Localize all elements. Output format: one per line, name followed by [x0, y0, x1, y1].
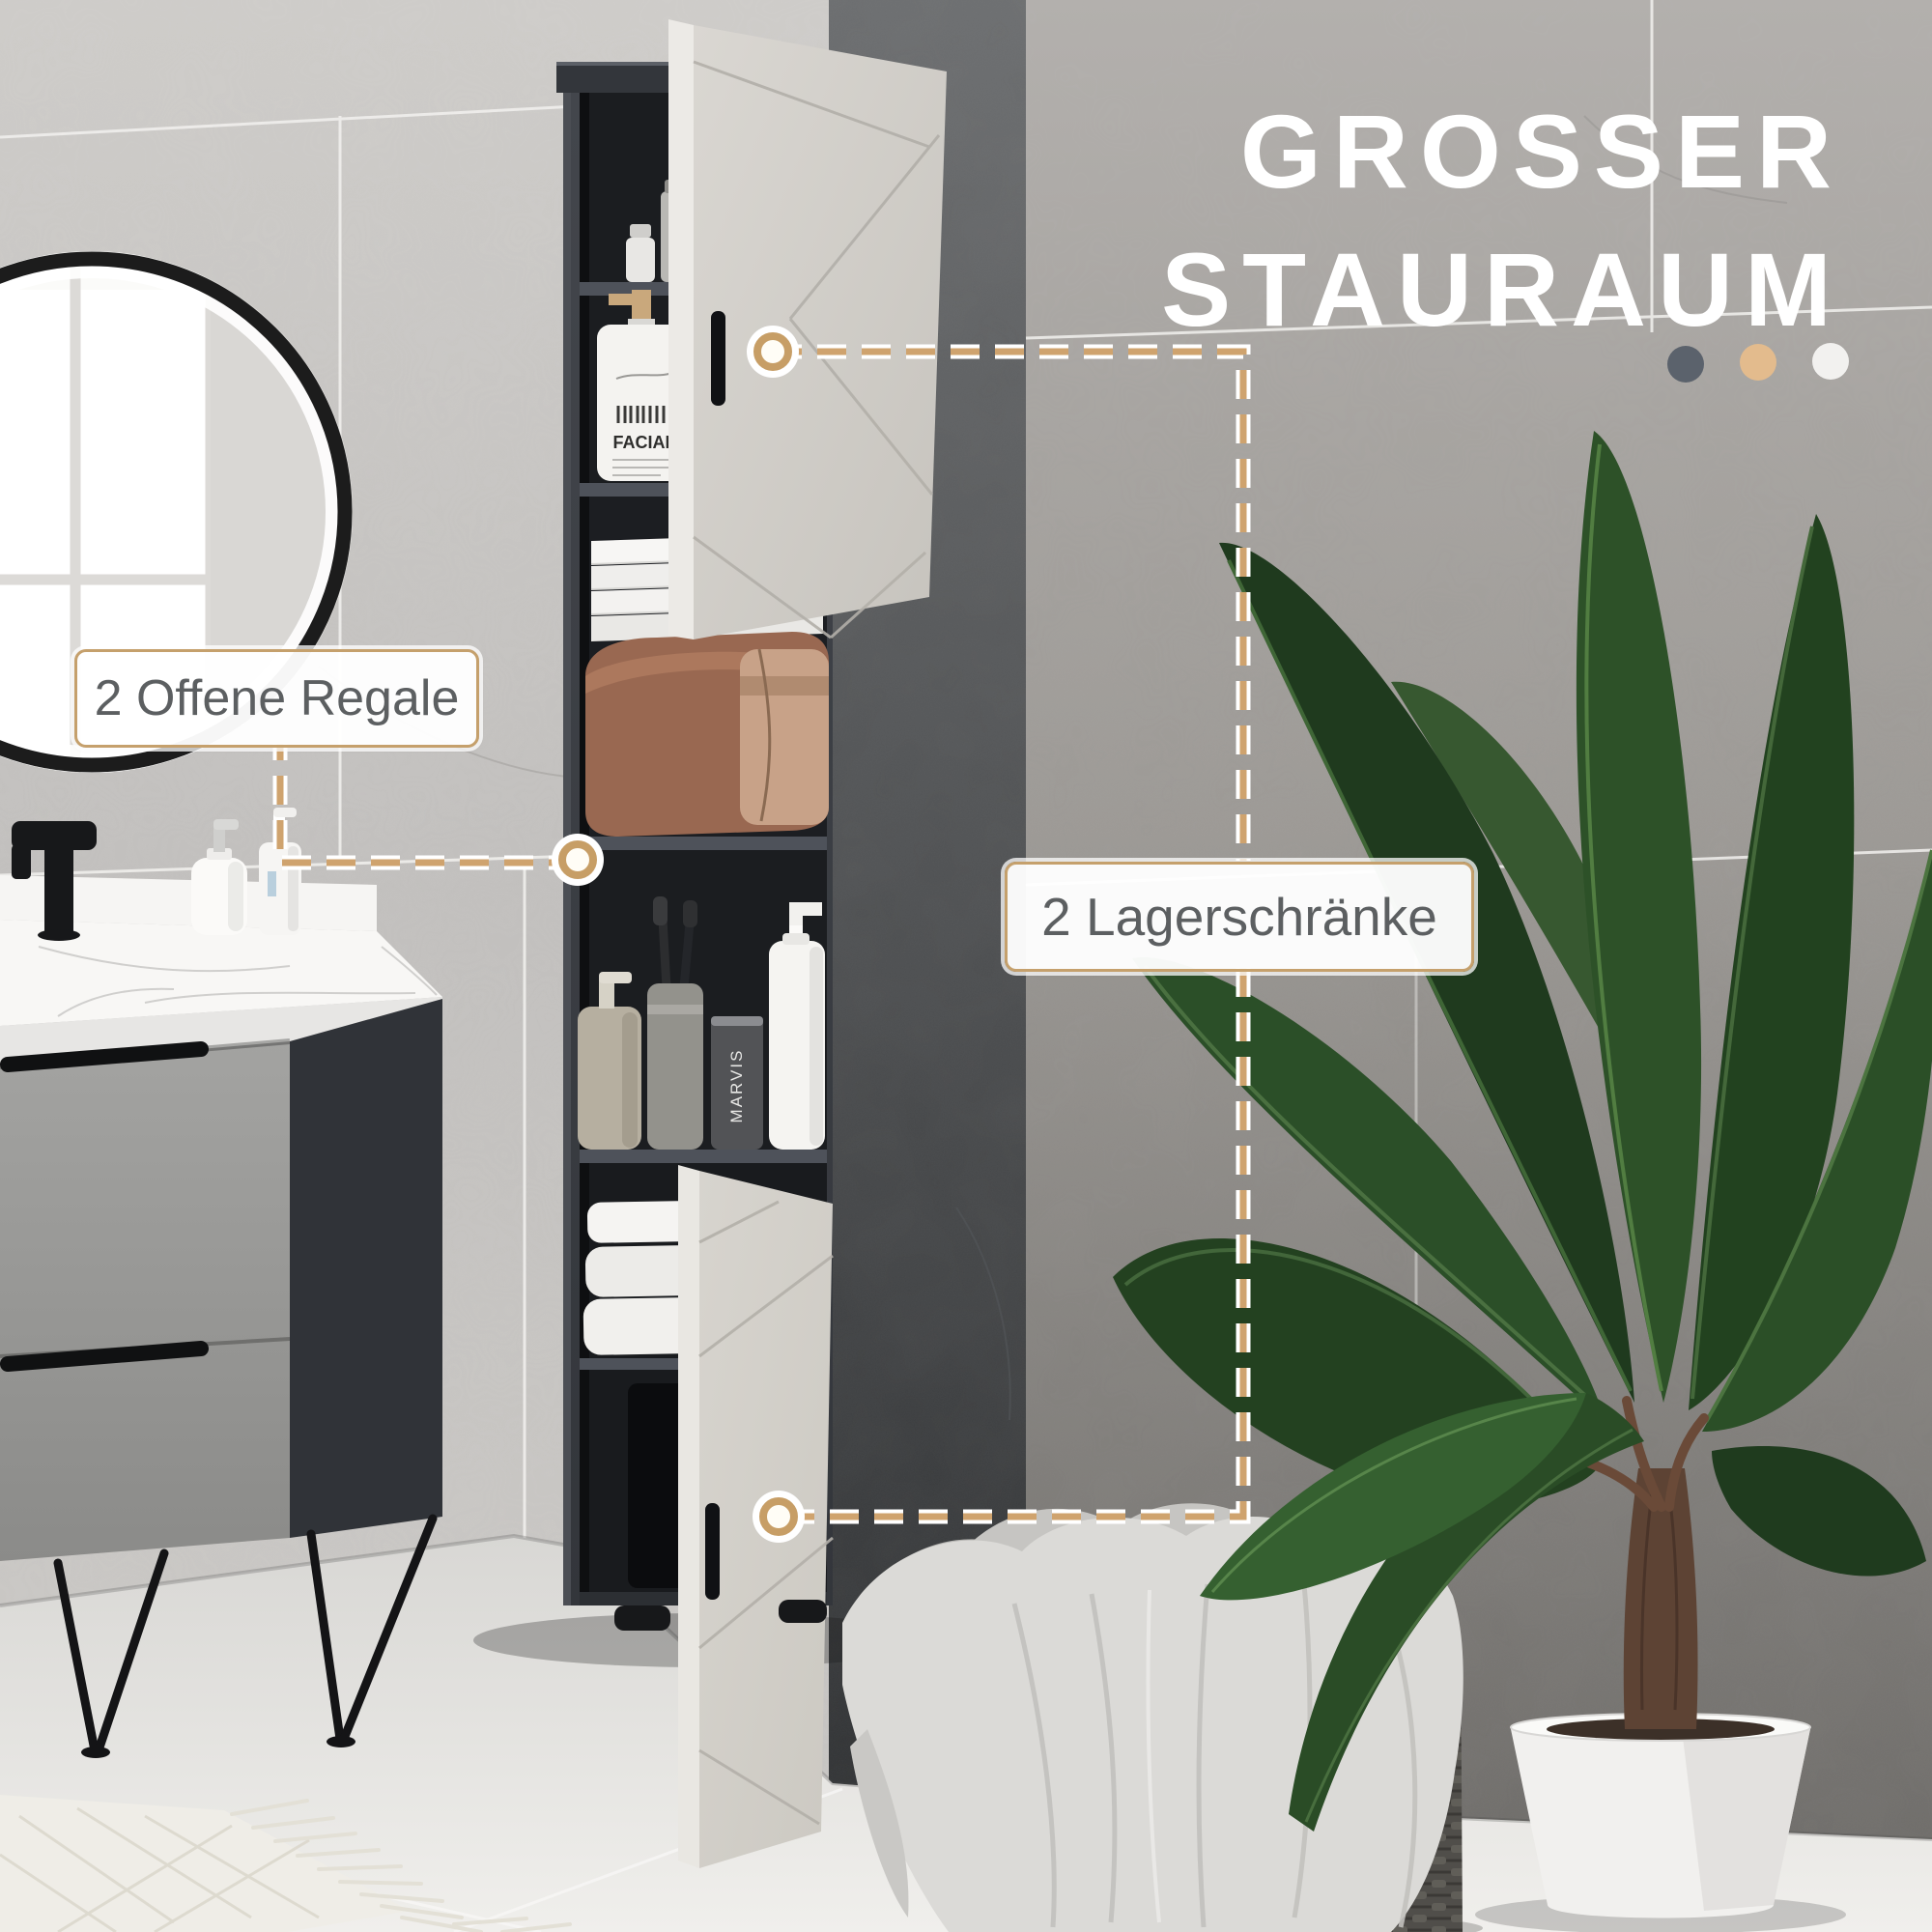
- door-handle-upper: [711, 311, 725, 406]
- headline: GROSSER STAURAUM: [1161, 83, 1843, 358]
- door-handle-lower: [705, 1503, 720, 1600]
- door-edge: [668, 19, 694, 639]
- callout-storage-cabinets-label: 2 Lagerschränke: [1041, 886, 1437, 948]
- planter-pot: [1511, 1714, 1810, 1918]
- facial-bottle-label: FACIAL: [613, 433, 676, 452]
- callout-open-shelves-label: 2 Offene Regale: [95, 669, 460, 727]
- upper-cabinet-door: [668, 19, 947, 639]
- headline-line-2: STAURAUM: [1161, 221, 1843, 359]
- draped-blanket: [842, 1503, 1463, 1932]
- callout-storage-cabinets: 2 Lagerschränke: [1005, 862, 1474, 972]
- vanity-drawers: [0, 1041, 290, 1561]
- product-marketing-image: FACIAL: [0, 0, 1932, 1932]
- headline-line-1: GROSSER: [1161, 83, 1843, 221]
- brown-towel-bag: [585, 632, 829, 837]
- callout-open-shelves: 2 Offene Regale: [74, 649, 479, 748]
- vanity-side-panel: [290, 999, 442, 1538]
- door-edge: [678, 1165, 699, 1868]
- toothbrush-cup-label: MARVIS: [727, 1049, 746, 1123]
